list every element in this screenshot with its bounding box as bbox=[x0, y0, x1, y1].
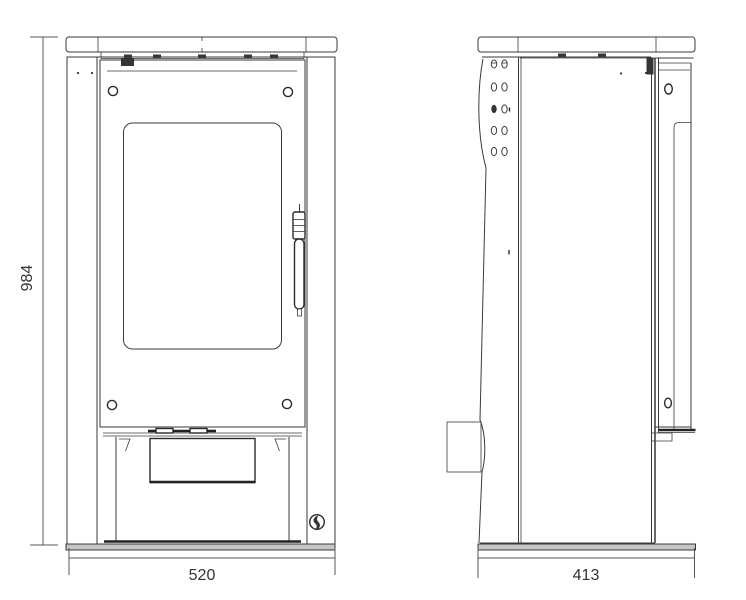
door-hinge-side bbox=[647, 58, 654, 75]
vent-hole bbox=[491, 126, 496, 134]
door-hinge-top bbox=[121, 58, 134, 66]
vent-hole bbox=[491, 147, 496, 155]
convection-strip bbox=[101, 52, 304, 59]
width-dimension-label: 520 bbox=[189, 567, 216, 584]
ash-compartment bbox=[103, 436, 302, 542]
door-bottom-vent bbox=[100, 427, 305, 433]
base-plate bbox=[66, 544, 335, 550]
vent-hole bbox=[491, 83, 496, 91]
hinge-pin-top bbox=[665, 84, 673, 94]
door-screw bbox=[108, 86, 117, 95]
door-screw bbox=[107, 400, 116, 409]
screw-dot bbox=[620, 72, 622, 74]
vent-hole bbox=[502, 147, 507, 155]
side-base-plate bbox=[478, 544, 696, 550]
brand-logo-icon bbox=[310, 515, 325, 531]
door-frame bbox=[97, 57, 307, 427]
height-dimension-line: 984 bbox=[19, 37, 58, 545]
door-handle bbox=[293, 204, 305, 316]
side-column-right bbox=[307, 57, 335, 544]
screw-dot bbox=[91, 72, 93, 74]
ash-drawer bbox=[150, 439, 255, 483]
height-dimension-label: 984 bbox=[19, 265, 36, 292]
vent-hole bbox=[491, 60, 496, 68]
door-screw bbox=[282, 399, 291, 408]
vent-hole bbox=[502, 105, 507, 113]
depth-dimension-label: 413 bbox=[573, 567, 600, 584]
side-column-left bbox=[67, 57, 97, 544]
hinge-pin-bottom bbox=[665, 398, 672, 408]
screw-dot bbox=[77, 72, 79, 74]
width-dimension-line: 520 bbox=[69, 548, 335, 584]
side-view: 413 bbox=[447, 37, 696, 584]
door-side-profile bbox=[647, 58, 696, 442]
front-view: 984 bbox=[19, 37, 337, 584]
side-top-plate bbox=[478, 37, 695, 52]
vent-hole bbox=[502, 60, 507, 68]
vent-hole bbox=[502, 126, 507, 134]
technical-drawing-canvas: 984 bbox=[0, 0, 746, 600]
rear-vent-panel bbox=[491, 60, 509, 156]
rear-outline bbox=[479, 59, 486, 543]
top-plate bbox=[66, 37, 337, 52]
door-screw bbox=[283, 87, 292, 96]
depth-dimension-line: 413 bbox=[478, 548, 695, 584]
glass-window bbox=[124, 123, 282, 349]
rear-air-inlet bbox=[447, 422, 481, 472]
corner-bracket bbox=[275, 439, 286, 451]
stove-drawing: 984 bbox=[0, 0, 746, 600]
corner-bracket bbox=[119, 439, 130, 451]
vent-hole bbox=[491, 105, 496, 113]
vent-hole bbox=[502, 83, 507, 91]
